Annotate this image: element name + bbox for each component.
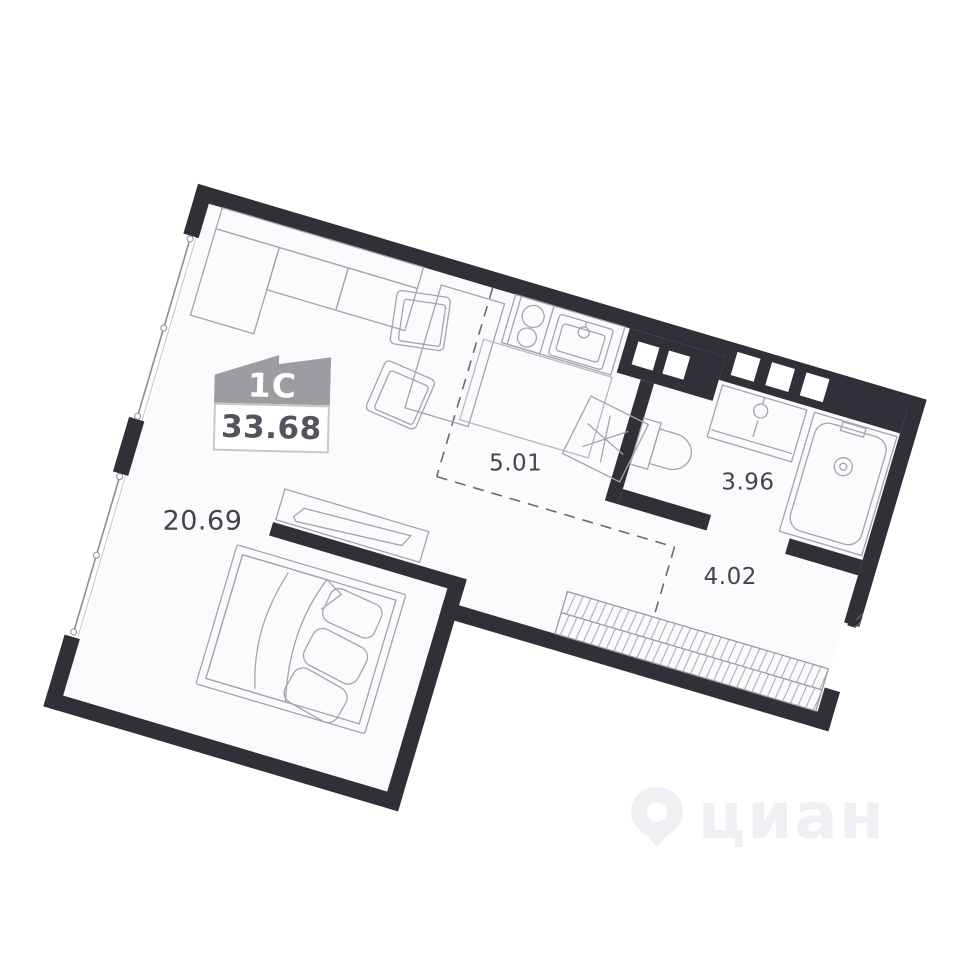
bathroom-area-label: 3.96 (721, 469, 774, 495)
total-area-value: 33.68 (213, 403, 330, 454)
living-room-area-label: 20.69 (163, 505, 243, 536)
watermark: циан (628, 780, 886, 854)
floor-plan-page: 20.69 5.01 3.96 4.02 1C 33.68 циан (0, 0, 960, 960)
map-pin-icon (628, 785, 686, 849)
hallway-area-label: 4.02 (704, 564, 757, 590)
kitchen-area-label: 5.01 (489, 451, 542, 477)
watermark-text: циан (698, 780, 886, 854)
apartment-type-label: 1C (214, 365, 331, 407)
apartment-type-badge: 1C 33.68 (213, 351, 331, 454)
